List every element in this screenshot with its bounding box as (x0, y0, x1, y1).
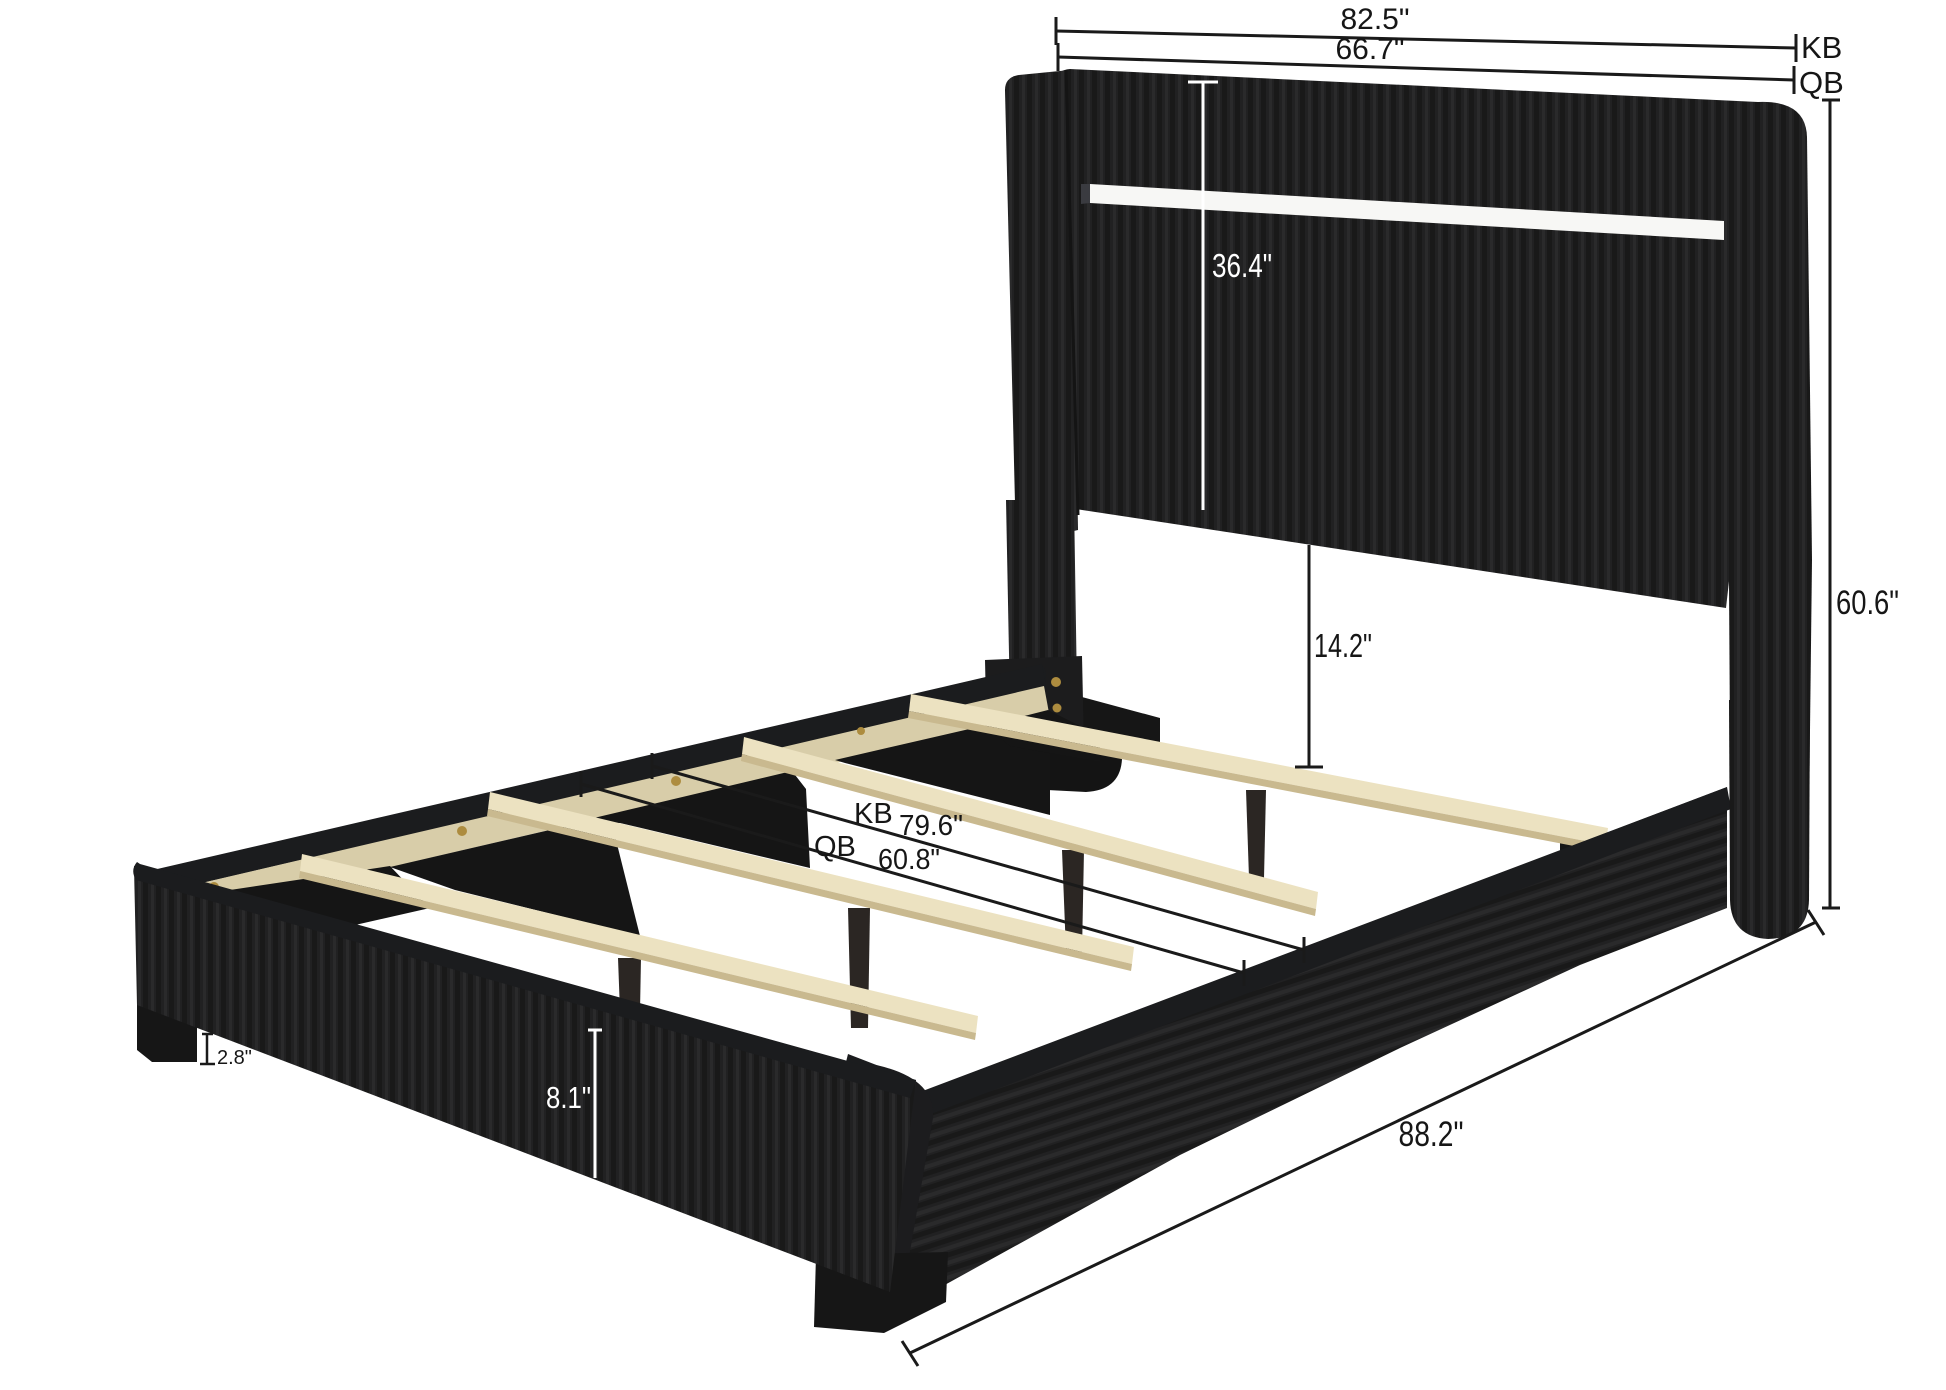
svg-text:66.7": 66.7" (1335, 33, 1404, 66)
svg-text:KB: KB (854, 798, 893, 830)
svg-text:82.5": 82.5" (1340, 3, 1409, 36)
svg-text:2.8": 2.8" (217, 1047, 252, 1069)
svg-text:8.1": 8.1" (546, 1080, 591, 1115)
svg-text:14.2": 14.2" (1314, 627, 1372, 664)
svg-text:79.6": 79.6" (899, 810, 963, 842)
svg-text:KB: KB (1801, 30, 1842, 65)
svg-text:60.8": 60.8" (878, 844, 940, 876)
svg-text:QB: QB (814, 831, 856, 863)
svg-text:36.4": 36.4" (1212, 247, 1272, 284)
svg-text:88.2": 88.2" (1399, 1115, 1464, 1154)
svg-text:QB: QB (1799, 65, 1844, 100)
svg-text:60.6": 60.6" (1836, 584, 1899, 622)
